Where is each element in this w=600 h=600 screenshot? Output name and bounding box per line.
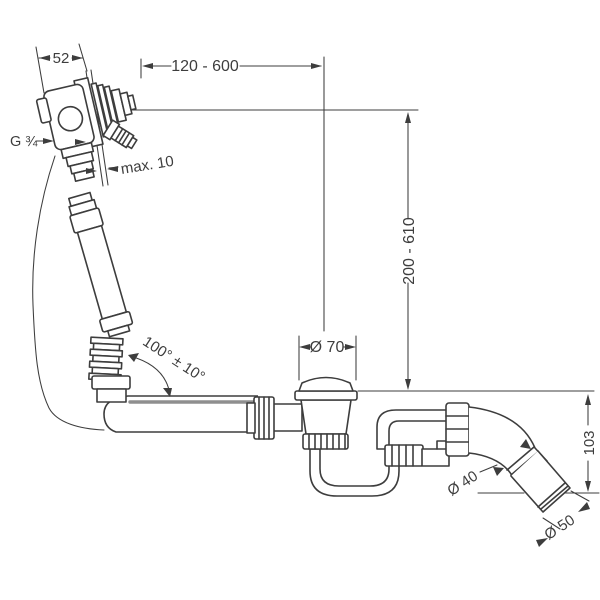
label-pipe-diameter: Ø 40 — [444, 468, 481, 500]
label-hose-angle: 100° ± 10° — [140, 333, 208, 386]
label-thread: G ¾ — [10, 134, 38, 150]
trap-union-nut — [385, 445, 423, 466]
label-outlet-height: 103 — [581, 430, 598, 455]
waste-assembly — [247, 378, 570, 513]
flexible-hose — [89, 337, 123, 381]
technical-drawing: 52 120 - 600 G ¾ max. 10 100° ± 10° 200 … — [0, 0, 600, 600]
label-wall-thickness: max. 10 — [120, 153, 175, 178]
waste-flange — [295, 391, 357, 400]
label-fitting-depth: 52 — [53, 50, 70, 67]
overflow-inlet — [273, 404, 302, 431]
label-length-range: 120 - 600 — [171, 58, 239, 75]
technical-diagram: 52 120 - 600 G ¾ max. 10 100° ± 10° 200 … — [0, 0, 600, 600]
label-height-range: 200 - 610 — [401, 217, 418, 285]
bend-collar — [446, 403, 469, 456]
inlet-nut — [247, 397, 274, 439]
hose-union — [92, 376, 130, 402]
label-outlet-diameter: Ø 50 — [541, 512, 578, 544]
waste-cap — [299, 378, 353, 392]
telescopic-tube — [65, 191, 134, 338]
overflow-pipe — [104, 396, 258, 432]
waste-body — [301, 400, 351, 434]
outlet-bend — [469, 407, 570, 512]
body-ring — [303, 434, 348, 449]
label-waste-diameter: Ø 70 — [310, 339, 345, 356]
